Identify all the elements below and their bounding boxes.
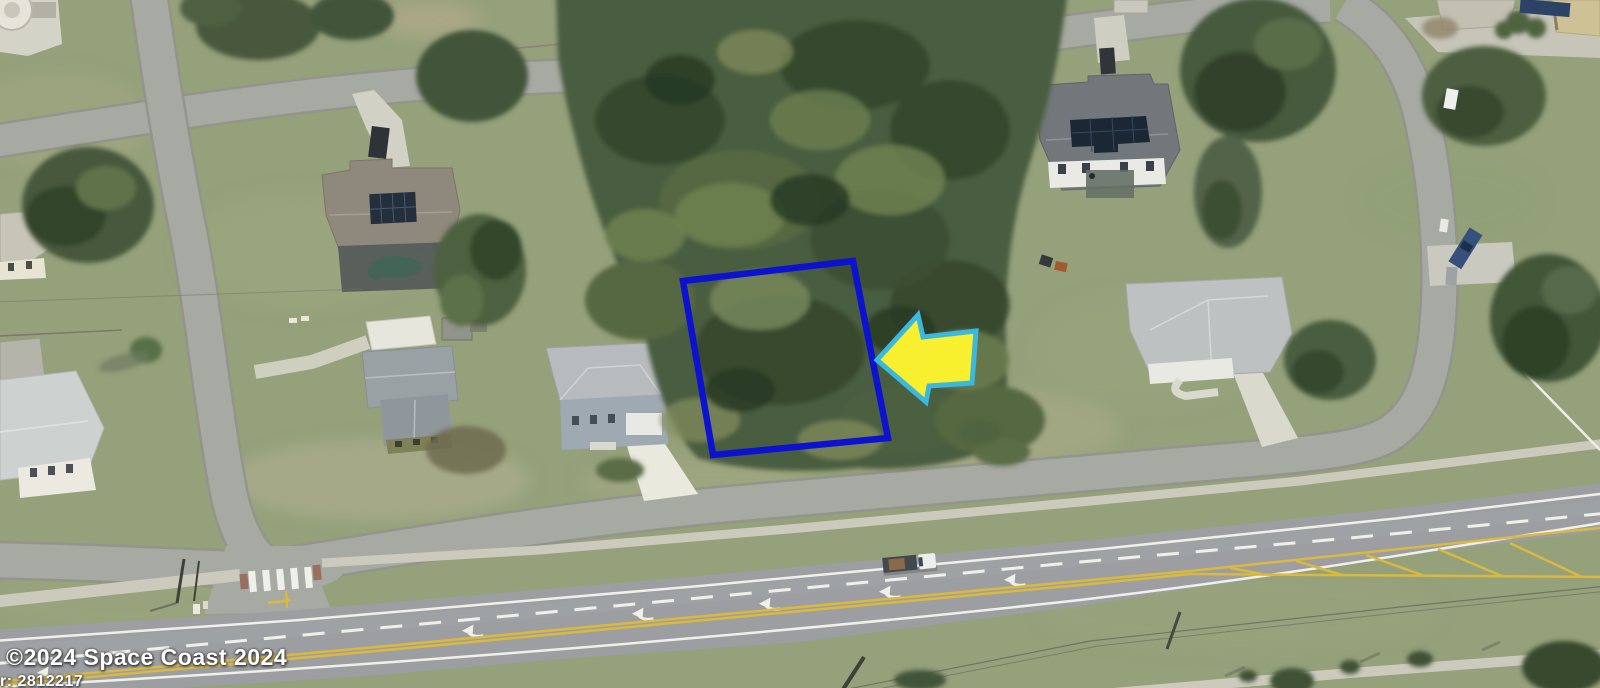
aerial-photo	[0, 0, 1600, 688]
gray-car	[1445, 267, 1457, 286]
road-sign	[193, 604, 200, 614]
solar-panels	[369, 192, 417, 224]
parked-car	[1099, 47, 1116, 74]
parked-suv	[368, 126, 390, 159]
aerial-map: ©2024 Space Coast 2024 r: 2812217	[0, 0, 1600, 688]
house-solar	[1032, 74, 1180, 198]
